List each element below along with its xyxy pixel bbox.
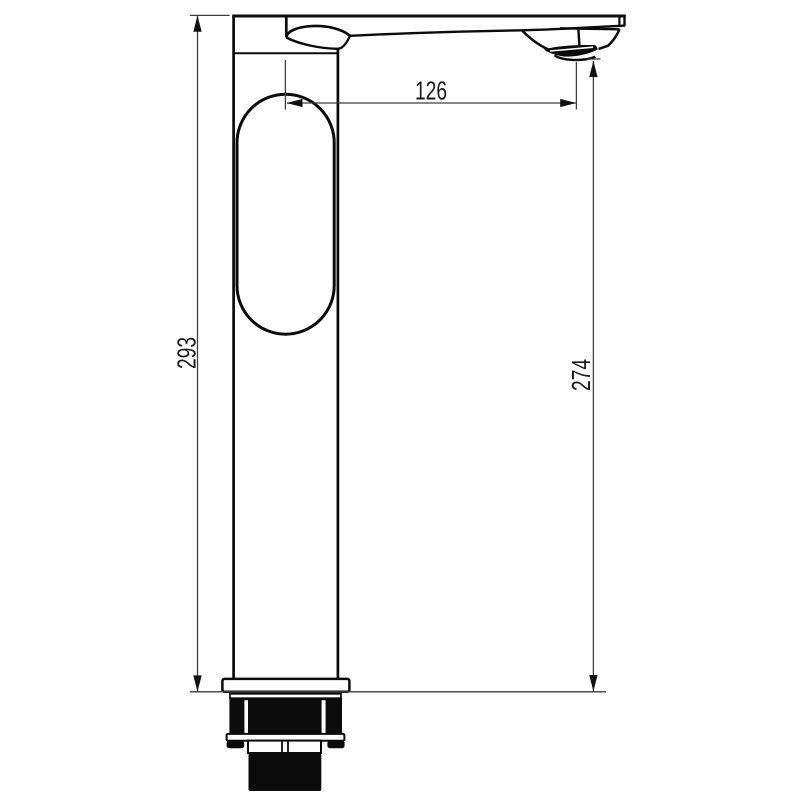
svg-text:274: 274 <box>566 359 596 391</box>
svg-text:126: 126 <box>415 76 447 106</box>
svg-text:293: 293 <box>171 337 201 369</box>
